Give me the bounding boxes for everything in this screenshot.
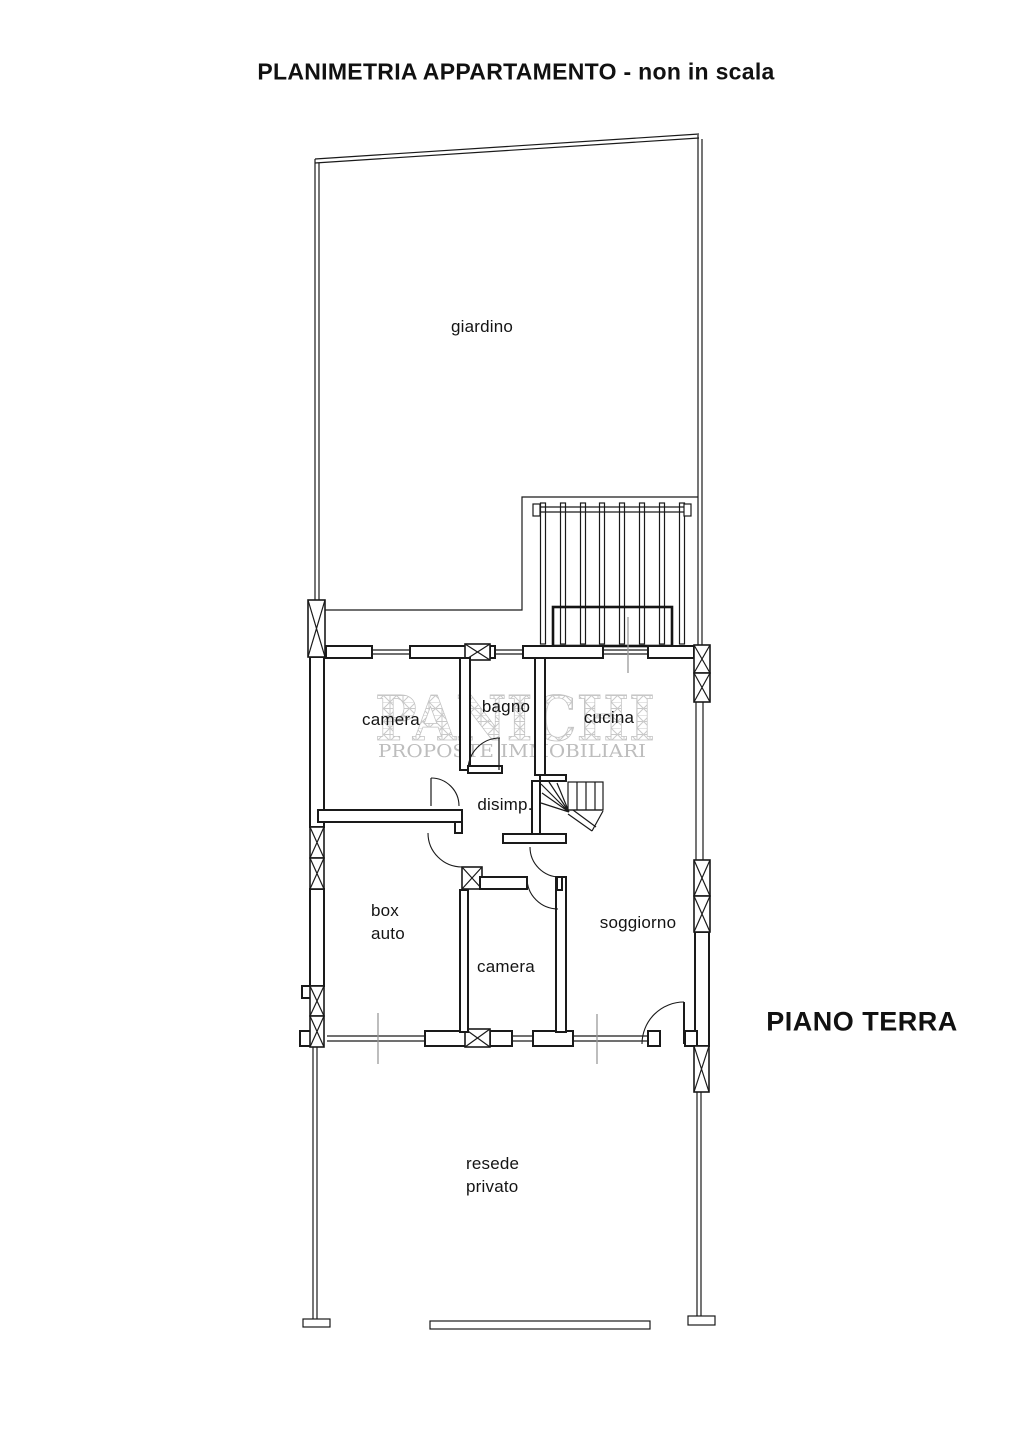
canopy-outline <box>553 607 672 646</box>
floor-label: PIANO TERRA <box>766 1007 958 1038</box>
pergola-slats <box>533 503 691 646</box>
room-label-kitchen: cucina <box>584 708 634 728</box>
room-label-yard-line1: resede <box>466 1152 519 1175</box>
room-label-bathroom: bagno <box>482 697 530 717</box>
staircase <box>541 782 603 831</box>
watermark-tagline: PROPOSTE IMMOBILIARI <box>378 742 646 762</box>
room-label-living-room: soggiorno <box>600 913 676 933</box>
room-label-garage: box auto <box>371 899 405 945</box>
room-label-yard-line2: privato <box>466 1175 519 1198</box>
room-label-garage-line1: box <box>371 899 405 922</box>
gate-bar <box>430 1321 650 1329</box>
room-label-hallway: disimp. <box>477 795 532 815</box>
floor-plan-page: PANICHI PROPOSTE IMMOBILIARI <box>0 0 1024 1448</box>
room-label-bedroom-top: camera <box>362 710 420 730</box>
room-label-garden: giardino <box>451 317 513 337</box>
floor-plan-drawing: PANICHI PROPOSTE IMMOBILIARI <box>0 0 1024 1448</box>
room-label-yard: resede privato <box>466 1152 519 1198</box>
structural-columns <box>308 600 710 1092</box>
room-label-bedroom-bottom: camera <box>477 957 535 977</box>
room-label-garage-line2: auto <box>371 922 405 945</box>
page-title: PLANIMETRIA APPARTAMENTO - non in scala <box>257 59 774 86</box>
